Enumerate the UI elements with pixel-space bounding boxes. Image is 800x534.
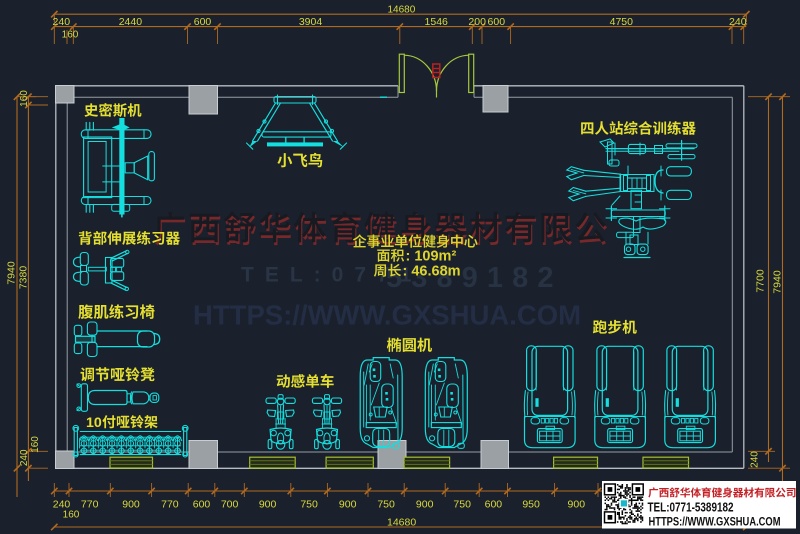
svg-text:600: 600: [193, 499, 211, 511]
svg-text:7940: 7940: [5, 261, 17, 285]
svg-text:240: 240: [750, 451, 761, 468]
svg-text:4750: 4750: [610, 16, 634, 28]
svg-text:3904: 3904: [299, 16, 323, 28]
svg-text:900: 900: [122, 499, 140, 511]
svg-text:10: 10: [86, 415, 102, 431]
svg-text:: 46.68m: : 46.68m: [403, 264, 461, 280]
svg-text:14680: 14680: [387, 517, 416, 529]
svg-text:1546: 1546: [425, 16, 449, 28]
svg-text:: 109m²: : 109m²: [406, 249, 457, 265]
svg-text:900: 900: [339, 499, 357, 511]
svg-text:7700: 7700: [754, 269, 766, 293]
svg-text:750: 750: [300, 499, 318, 511]
svg-text:950: 950: [522, 499, 540, 511]
svg-text:770: 770: [81, 499, 99, 511]
svg-text:240: 240: [19, 449, 30, 466]
svg-text:7380: 7380: [17, 266, 29, 290]
svg-text:900: 900: [568, 499, 586, 511]
svg-text:160: 160: [30, 436, 41, 453]
svg-text:HTTPS://WWW.GXSHUA.COM: HTTPS://WWW.GXSHUA.COM: [649, 516, 781, 529]
svg-text:240: 240: [729, 16, 747, 28]
svg-text:700: 700: [221, 499, 239, 511]
svg-text:750: 750: [453, 499, 471, 511]
svg-text:600: 600: [488, 16, 506, 28]
svg-text:240: 240: [53, 16, 71, 28]
svg-text:600: 600: [485, 499, 503, 511]
svg-text:770: 770: [161, 499, 179, 511]
svg-text:HTTPS://WWW.GXSHUA.COM: HTTPS://WWW.GXSHUA.COM: [193, 300, 581, 331]
svg-text:160: 160: [19, 90, 30, 107]
svg-text:2440: 2440: [119, 16, 143, 28]
svg-text:600: 600: [194, 16, 212, 28]
svg-text:900: 900: [259, 499, 277, 511]
svg-text:200: 200: [468, 16, 486, 28]
svg-text:14680: 14680: [388, 5, 416, 16]
svg-text:7940: 7940: [771, 270, 783, 294]
svg-text:160: 160: [62, 30, 79, 41]
svg-text:160: 160: [63, 510, 80, 521]
svg-text:900: 900: [416, 499, 434, 511]
svg-text:750: 750: [377, 499, 395, 511]
svg-text:TEL:0771-5389182: TEL:0771-5389182: [648, 501, 734, 515]
